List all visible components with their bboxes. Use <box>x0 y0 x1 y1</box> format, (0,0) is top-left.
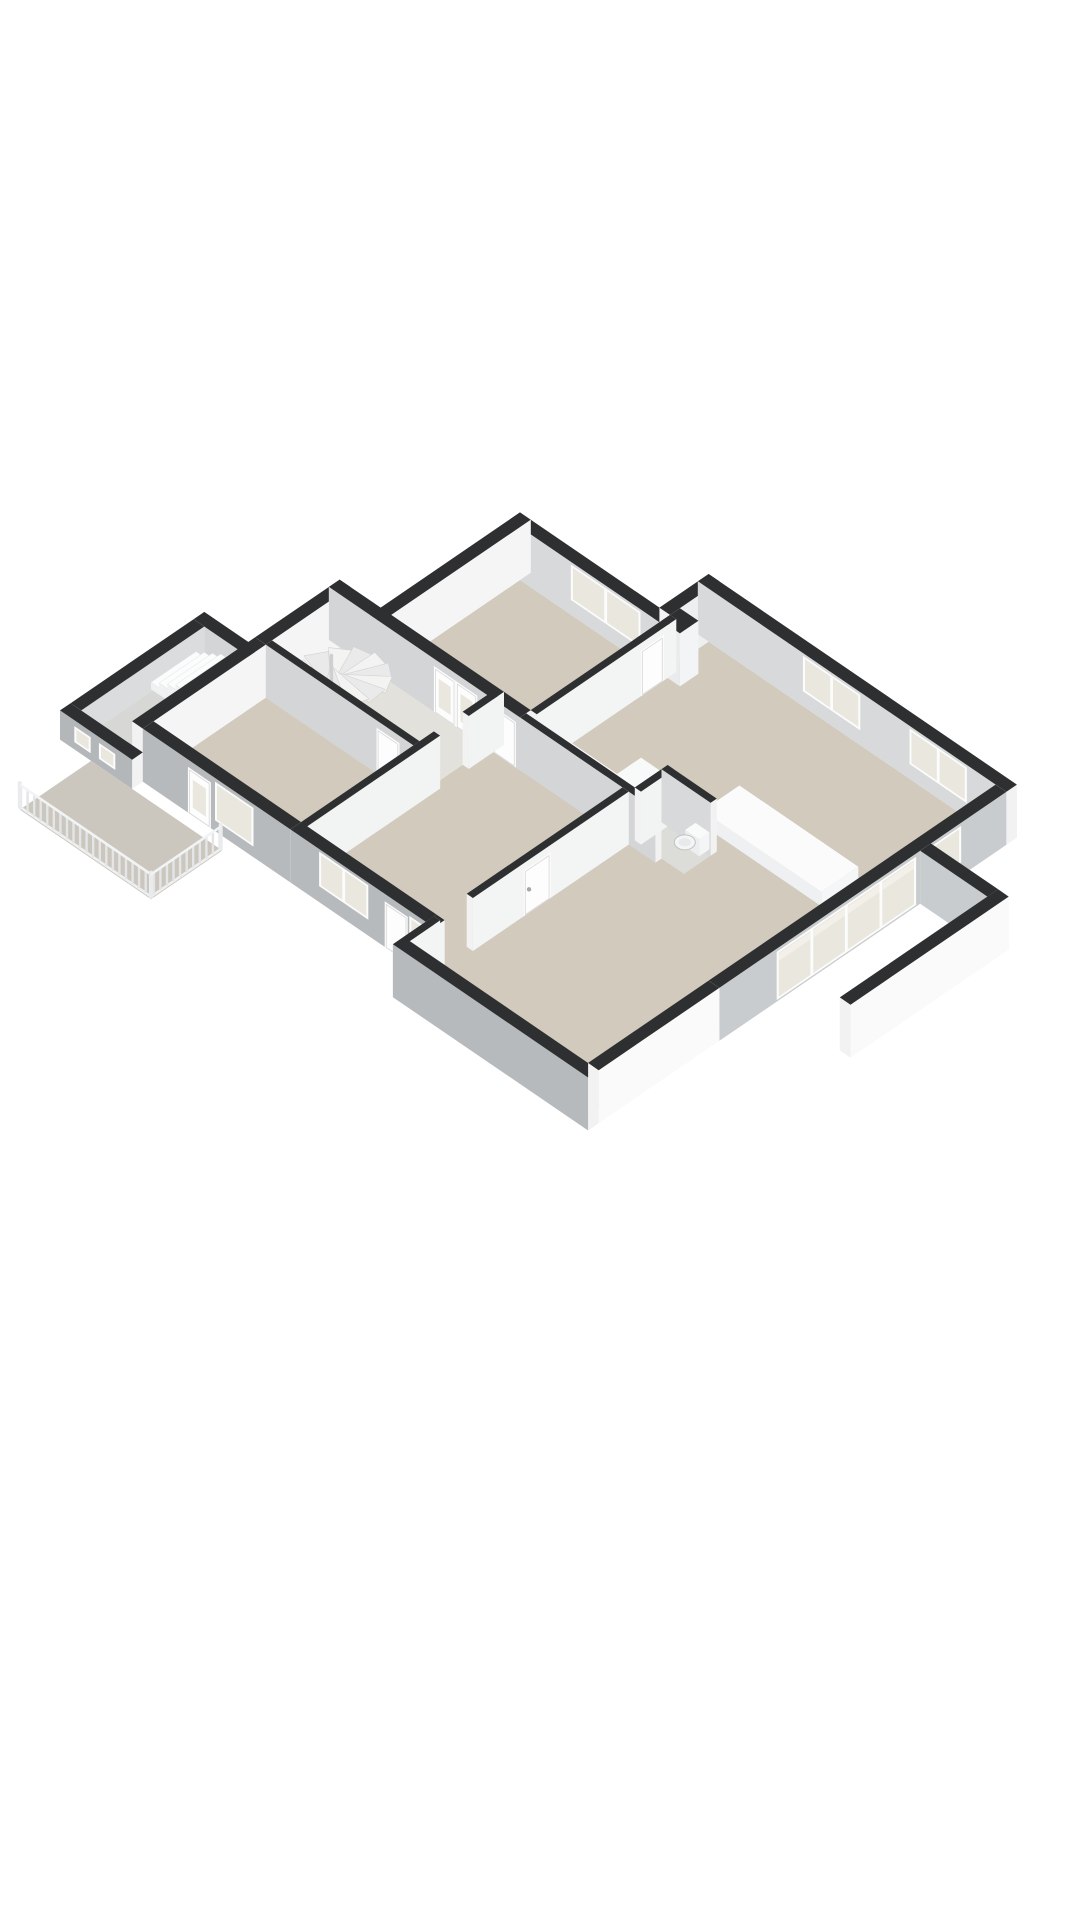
toilet-fixture-bowl-inner <box>679 838 691 846</box>
floorplan-svg <box>0 0 1080 1920</box>
living-west-wall-door-handle-icon <box>527 887 531 891</box>
se-lower-wall-end-b <box>588 1063 599 1123</box>
terrace-east-wall-end-b <box>840 997 851 1057</box>
floorplan-viewport <box>0 0 1080 1920</box>
hall-east-wall-upper-end-b <box>463 712 469 769</box>
north-facade-wall-end-b <box>1006 785 1017 845</box>
toilet-north-wall-end-b <box>711 799 717 856</box>
living-west-wall-end-b <box>467 894 473 951</box>
toilet-west-wall-end-b <box>635 787 641 844</box>
